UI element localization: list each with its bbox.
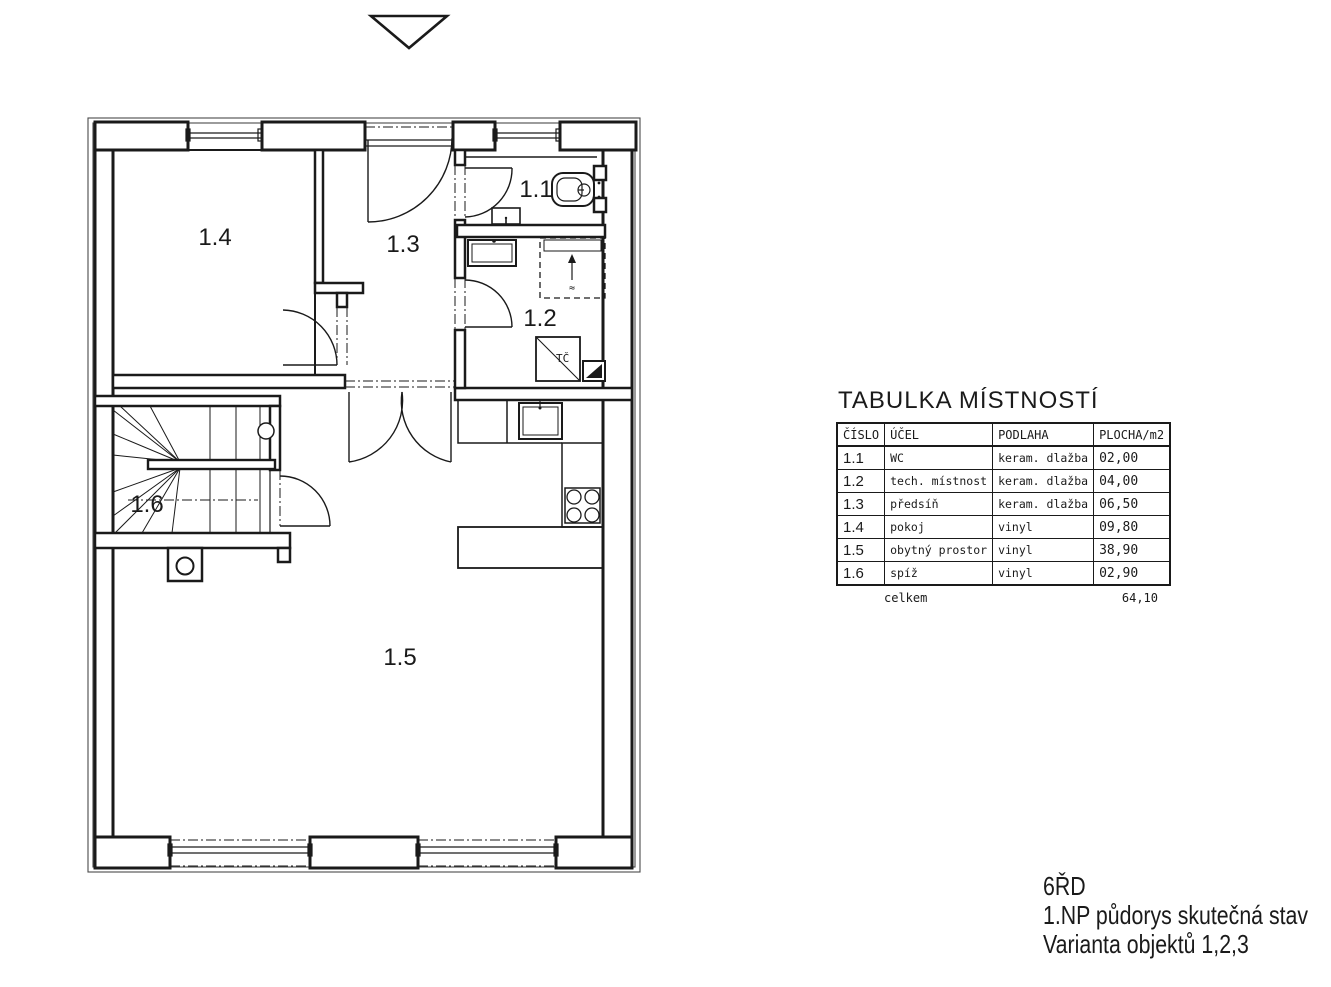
room-label-1-6: 1.6 — [130, 491, 163, 518]
cell-podlaha: keram. dlažba — [993, 493, 1094, 516]
cell-plocha: 04,00 — [1094, 470, 1171, 493]
entrance-marker-icon — [371, 16, 447, 48]
col-header-cislo: ČÍSLO — [837, 423, 885, 446]
kitchen-sink — [519, 400, 562, 439]
cell-plocha: 38,90 — [1094, 539, 1171, 562]
room-label-1-2: 1.2 — [523, 305, 556, 332]
cell-plocha: 02,90 — [1094, 562, 1171, 586]
cell-ucel: obytný prostor — [885, 539, 993, 562]
cell-podlaha: vinyl — [993, 562, 1094, 586]
cell-podlaha: keram. dlažba — [993, 470, 1094, 493]
titleblock-line-3: Varianta objektů 1,2,3 — [1043, 930, 1308, 959]
col-header-plocha: PLOCHA/m2 — [1094, 423, 1171, 446]
total-value: 64,10 — [1122, 591, 1158, 605]
cell-plocha: 06,50 — [1094, 493, 1171, 516]
tech-room-sink — [468, 239, 516, 266]
room-label-1-5: 1.5 — [383, 644, 416, 671]
washer-mark: ≈ — [569, 283, 575, 294]
cell-plocha: 02,00 — [1094, 446, 1171, 470]
cell-cislo: 1.3 — [837, 493, 885, 516]
cell-cislo: 1.6 — [837, 562, 885, 586]
titleblock-line-1: 6ŘD — [1043, 872, 1308, 901]
interior-walls — [95, 150, 632, 581]
table-title: TABULKA MÍSTNOSTÍ — [838, 387, 1166, 415]
col-header-podlaha: PODLAHA — [993, 423, 1094, 446]
total-label: celkem — [884, 591, 927, 605]
col-header-ucel: ÚČEL — [885, 423, 993, 446]
drawing-sheet: { "plan": { "rooms": [ {"id": "1.1", "la… — [0, 0, 1331, 987]
room-label-1-3: 1.3 — [386, 231, 419, 258]
cell-cislo: 1.1 — [837, 446, 885, 470]
table-row: 1.1 WC keram. dlažba 02,00 — [837, 446, 1170, 470]
rooms-table-section: TABULKA MÍSTNOSTÍ ČÍSLO ÚČEL PODLAHA PLO… — [836, 387, 1166, 605]
cell-ucel: tech. místnost — [885, 470, 993, 493]
kitchen-counter — [458, 400, 603, 568]
cell-podlaha: vinyl — [993, 539, 1094, 562]
shaft-symbol — [583, 361, 605, 381]
table-row: 1.4 pokoj vinyl 09,80 — [837, 516, 1170, 539]
toilet-fixture — [552, 173, 600, 206]
entrance-threshold — [365, 140, 453, 146]
titleblock: 6ŘD 1.NP půdorys skutečná stav Varianta … — [1043, 872, 1308, 959]
table-row: 1.5 obytný prostor vinyl 38,90 — [837, 539, 1170, 562]
cell-podlaha: vinyl — [993, 516, 1094, 539]
cell-cislo: 1.2 — [837, 470, 885, 493]
cell-ucel: pokoj — [885, 516, 993, 539]
rooms-table: ČÍSLO ÚČEL PODLAHA PLOCHA/m2 1.1 WC kera… — [836, 422, 1171, 586]
cell-plocha: 09,80 — [1094, 516, 1171, 539]
table-row: 1.2 tech. místnost keram. dlažba 04,00 — [837, 470, 1170, 493]
cell-ucel: WC — [885, 446, 993, 470]
table-total-row: celkem 64,10 — [836, 591, 1166, 605]
room-label-1-4: 1.4 — [198, 224, 231, 251]
floor-plan-svg: ≈ TČ — [0, 0, 690, 987]
duct-circle — [177, 558, 194, 575]
cell-ucel: předsíň — [885, 493, 993, 516]
table-row: 1.6 spíž vinyl 02,90 — [837, 562, 1170, 586]
heat-pump-label: TČ — [556, 352, 569, 365]
cell-cislo: 1.4 — [837, 516, 885, 539]
stair-column — [258, 423, 274, 439]
room-label-1-1: 1.1 — [519, 176, 552, 203]
titleblock-line-2: 1.NP půdorys skutečná stav — [1043, 901, 1308, 930]
cooktop — [565, 488, 600, 523]
wc-sink — [492, 208, 520, 224]
table-row: 1.3 předsíň keram. dlažba 06,50 — [837, 493, 1170, 516]
cell-cislo: 1.5 — [837, 539, 885, 562]
stair-handrail — [148, 460, 275, 469]
table-header-row: ČÍSLO ÚČEL PODLAHA PLOCHA/m2 — [837, 423, 1170, 446]
cell-podlaha: keram. dlažba — [993, 446, 1094, 470]
room-1-4-outline — [113, 150, 315, 375]
cell-ucel: spíž — [885, 562, 993, 586]
